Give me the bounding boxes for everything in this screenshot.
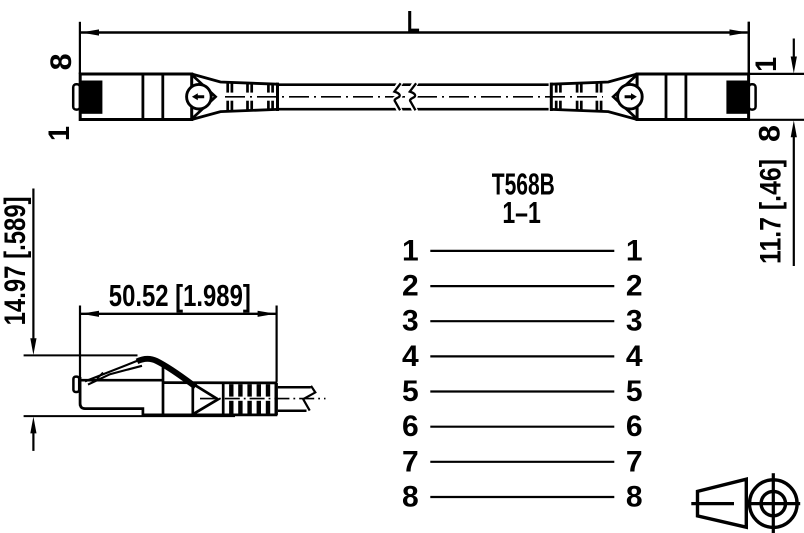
svg-text:1–1: 1–1 (502, 195, 541, 230)
svg-text:7: 7 (402, 445, 419, 478)
svg-text:2: 2 (402, 270, 419, 303)
svg-text:8: 8 (45, 53, 78, 70)
svg-text:1: 1 (43, 126, 76, 141)
svg-text:6: 6 (402, 410, 419, 443)
svg-text:50.52 [1.989]: 50.52 [1.989] (109, 278, 251, 313)
svg-text:6: 6 (626, 410, 643, 443)
svg-text:14.97 [.589]: 14.97 [.589] (0, 196, 32, 325)
svg-text:8: 8 (753, 125, 786, 142)
svg-text:3: 3 (402, 305, 419, 338)
svg-text:11.7 [.46]: 11.7 [.46] (754, 159, 787, 264)
svg-text:1: 1 (626, 234, 643, 267)
svg-text:1: 1 (750, 57, 783, 72)
svg-text:5: 5 (402, 375, 419, 408)
svg-text:2: 2 (626, 270, 643, 303)
svg-text:7: 7 (626, 445, 643, 478)
svg-text:L: L (407, 4, 420, 39)
svg-text:8: 8 (626, 481, 643, 514)
svg-text:8: 8 (402, 481, 419, 514)
svg-text:1: 1 (402, 234, 419, 267)
svg-text:4: 4 (402, 340, 419, 373)
svg-text:4: 4 (626, 340, 643, 373)
svg-text:5: 5 (626, 375, 643, 408)
svg-text:3: 3 (626, 305, 643, 338)
